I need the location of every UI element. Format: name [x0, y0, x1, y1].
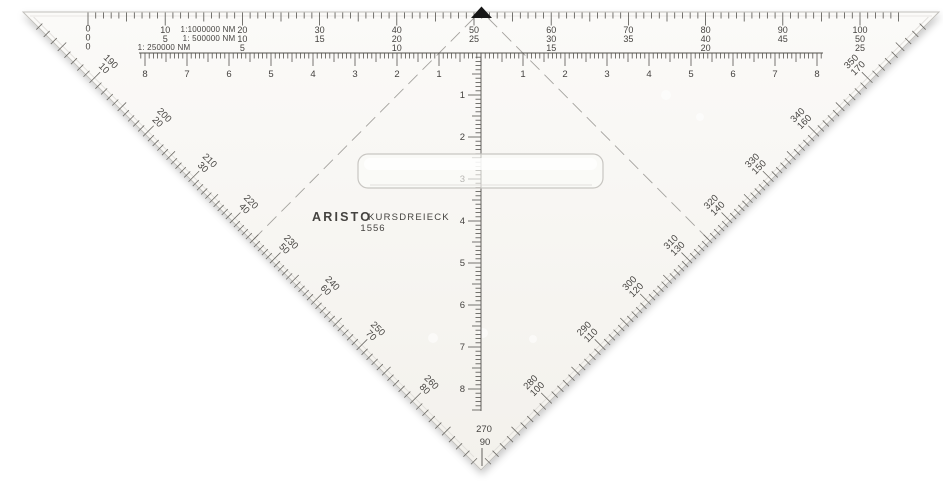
hyp-ruler-number-right: 5 — [688, 69, 693, 80]
reflection-spot — [696, 113, 704, 121]
reflection-spot — [478, 328, 488, 338]
hyp-ruler-number-right: 8 — [814, 69, 819, 80]
hyp-ruler-number-left: 3 — [352, 69, 357, 80]
hyp-ruler-number-right: 3 — [604, 69, 609, 80]
hyp-ruler-number-right: 4 — [646, 69, 651, 80]
vertical-ruler-number: 7 — [460, 342, 465, 353]
reflection-spot — [661, 90, 671, 100]
hyp-ruler-number-left: 4 — [310, 69, 315, 80]
hyp-ruler-number-left: 8 — [142, 69, 147, 80]
hyp-ruler-number-left: 1 — [436, 69, 441, 80]
vertical-ruler-number: 2 — [460, 132, 465, 143]
hyp-ruler-number-right: 6 — [730, 69, 735, 80]
top-scale-number: 15 — [546, 43, 556, 53]
degree-label-270-outer: 270 — [476, 424, 492, 435]
vertical-ruler-number: 1 — [460, 90, 465, 101]
vertical-ruler-number: 4 — [460, 216, 465, 227]
hyp-ruler-number-right: 7 — [772, 69, 777, 80]
reflection-spot — [529, 335, 537, 343]
vertical-ruler-number: 6 — [460, 300, 465, 311]
scale-label-1000000: 1:1000000 NM — [181, 25, 236, 34]
photo-of-course-triangle: 1020304050607080901000510152025303540455… — [0, 0, 943, 484]
top-scale-number: 35 — [623, 34, 633, 44]
top-scale-number: 5 — [240, 43, 245, 53]
top-scale-number: 25 — [469, 34, 479, 44]
brand-product: KURSDREIECK — [368, 212, 450, 223]
vertical-ruler-number: 8 — [460, 384, 465, 395]
reflection-spot — [428, 333, 438, 343]
grip-handle-highlight — [364, 158, 597, 170]
hyp-ruler-number-left: 5 — [268, 69, 273, 80]
scale-label-250000: 1: 250000 NM — [138, 43, 191, 52]
top-scale-number: 20 — [701, 43, 711, 53]
vertical-ruler-number: 5 — [460, 258, 465, 269]
hyp-ruler-number-left: 7 — [184, 69, 189, 80]
top-scale-number: 15 — [315, 34, 325, 44]
course-triangle-graphic: 1020304050607080901000510152025303540455… — [0, 0, 943, 484]
scale-label-500000: 1: 500000 NM — [183, 34, 236, 43]
top-scale-number: 25 — [855, 43, 865, 53]
top-scale-zero: 0 — [85, 42, 90, 52]
degree-label-270-inner: 90 — [480, 437, 491, 448]
brand-model: 1556 — [360, 223, 385, 234]
top-scale-number: 45 — [778, 34, 788, 44]
hyp-ruler-number-left: 2 — [394, 69, 399, 80]
top-scale-number: 10 — [392, 43, 402, 53]
hyp-ruler-number-right: 1 — [520, 69, 525, 80]
hyp-ruler-number-left: 6 — [226, 69, 231, 80]
brand-name: ARISTO — [312, 210, 372, 224]
hyp-ruler-number-right: 2 — [562, 69, 567, 80]
